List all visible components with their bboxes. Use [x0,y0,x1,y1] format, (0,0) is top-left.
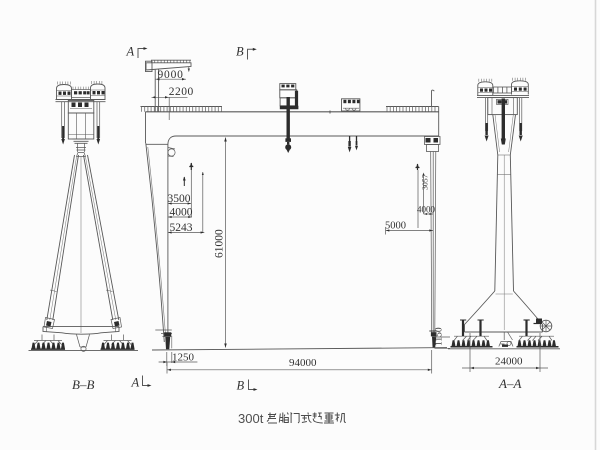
svg-text:1150: 1150 [435,327,445,346]
svg-text:24000: 24000 [495,356,523,368]
svg-text:B–B: B–B [72,377,94,392]
svg-text:B: B [237,379,245,393]
svg-text:A: A [126,45,135,59]
svg-text:94000: 94000 [289,357,317,369]
svg-text:2200: 2200 [169,86,194,98]
svg-text:3057: 3057 [421,174,430,190]
svg-text:B: B [236,45,244,59]
svg-text:A: A [131,376,140,390]
svg-text:A–A: A–A [498,376,521,391]
svg-text:61000: 61000 [214,229,226,258]
svg-text:300t: 300t [238,411,264,426]
svg-text:4000: 4000 [417,205,436,215]
